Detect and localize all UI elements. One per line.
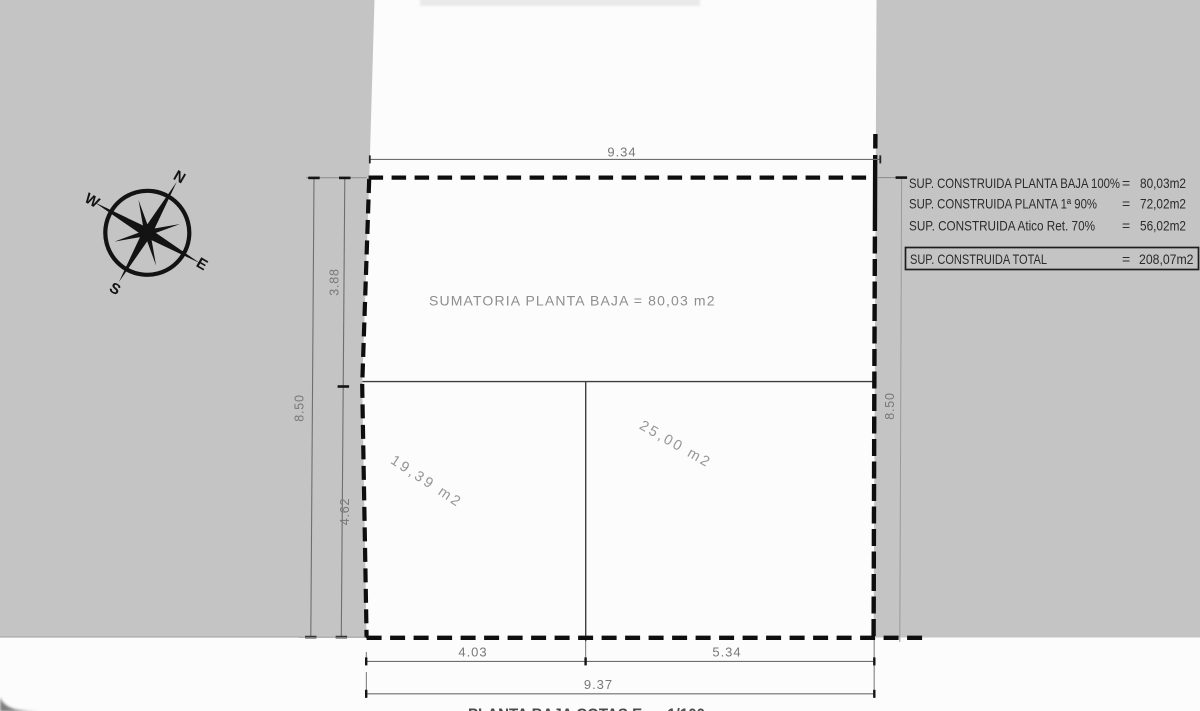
svg-text:=: =: [1122, 196, 1130, 212]
svg-text:SUP. CONSTRUIDA TOTAL: SUP. CONSTRUIDA TOTAL: [910, 251, 1047, 267]
svg-text:72,02m2: 72,02m2: [1140, 196, 1186, 212]
svg-text:8.50: 8.50: [293, 394, 307, 422]
svg-text:208,07m2: 208,07m2: [1139, 251, 1194, 267]
svg-text:9.34: 9.34: [607, 145, 636, 160]
svg-text:SUP. CONSTRUIDA PLANTA 1ª 90%: SUP. CONSTRUIDA PLANTA 1ª 90%: [909, 196, 1097, 212]
svg-text:80,03m2: 80,03m2: [1140, 175, 1186, 191]
svg-text:56,02m2: 56,02m2: [1140, 218, 1186, 234]
svg-text:8.50: 8.50: [883, 392, 897, 420]
svg-text:=: =: [1122, 251, 1130, 267]
svg-text:SUMATORIA PLANTA BAJA = 80: SUMATORIA PLANTA BAJA = 80,03 m2: [429, 293, 715, 309]
svg-text:3.88: 3.88: [328, 268, 342, 296]
svg-text:9.37: 9.37: [584, 677, 613, 692]
svg-text:SUP. CONSTRUIDA Atico Ret. 70: SUP. CONSTRUIDA Atico Ret. 70%: [909, 218, 1095, 234]
svg-text:4.03: 4.03: [458, 645, 487, 660]
svg-text:SUP. CONSTRUIDA PLANTA BAJA 10: SUP. CONSTRUIDA PLANTA BAJA 100%: [909, 175, 1120, 191]
svg-text:=: =: [1122, 175, 1130, 191]
svg-text:5.34: 5.34: [712, 645, 741, 660]
svg-text:4.62: 4.62: [338, 498, 352, 526]
svg-text:=: =: [1122, 218, 1130, 234]
